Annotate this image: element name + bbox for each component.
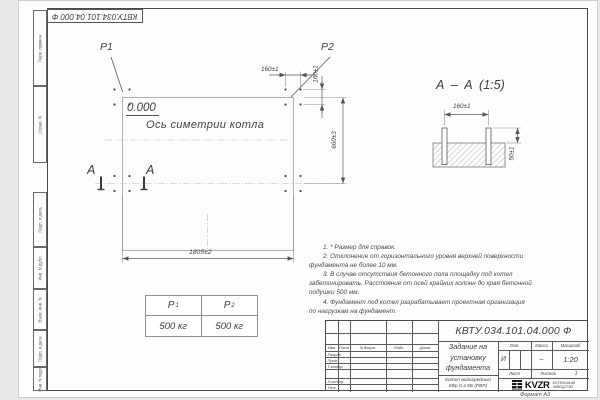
tb-row-tkontr: Т.контр. [326,364,350,369]
tb-listov-label: Листов [533,370,563,378]
load-table-header-p1: Р1 [146,296,202,316]
margin-label: Взам. инв. N [38,297,43,322]
margin-box-podp-data-1: Подп. и дата [33,192,47,247]
tb-scale-label: Масштаб [552,342,589,350]
kvzr-logo-subtitle: КОТЕЛЬНЫЙ ЗАВОД РЭП [553,381,576,389]
dim-bolt-vertical-label: 160±1 [313,58,323,91]
p2-label: Р2 [321,41,334,53]
load-table-value-p2: 500 кг [202,316,258,336]
margin-box-sprav-n: Справ. N [33,86,47,163]
margin-label: Инв. N дубл. [38,255,43,280]
margin-label: Инв. N подл. [38,366,43,391]
tb-col-ndoc: N докум. [350,345,386,351]
tb-listov-value: 1 [566,370,586,378]
margin-box-podp-data-2: Подп. и дата [33,330,47,367]
margin-box-vzam-inv: Взам. инв. N [33,289,47,330]
margin-label: Перв. примен. [38,34,43,63]
margin-label: Справ. N [38,116,43,134]
note-4: 4. Фундамент под котел разрабатывает про… [309,298,573,316]
technical-notes: 1. * Размер для справок. 2. Отклонение о… [309,243,573,316]
note-1: 1. * Размер для справок. [309,243,573,252]
tb-mass-label: Масса [531,342,552,350]
manufacturer-logo: ООО KVZR КОТЕЛЬНЫЙ ЗАВОД РЭП [498,378,589,392]
margin-box-perv-primen: Перв. примен. [33,10,47,86]
tb-mass-value: – [531,350,552,369]
tb-col-list: Лист [338,345,350,351]
tb-row-prov: Пров. [326,358,350,363]
tb-designation: КВТУ.034.101.04.000 Ф [438,321,589,341]
drawing-sheet-viewport: КВТУ.034.101.04.000 Ф Перв. примен. Спра… [0,0,600,400]
dim-height-label: 660±3 [331,120,341,160]
note-2: 2. Отклонение от горизонтального уровня … [309,252,573,270]
tb-col-podp: Подп. [386,345,412,351]
boiler-symmetry-axis-label: Ось симетрии котла [146,119,264,131]
load-table: Р1 Р2 500 кг 500 кг [145,295,258,337]
section-view-title: А – А (1:5) [436,78,505,92]
section-letter-left: А [87,163,95,177]
sec-dim-protrusion-label: 50±1 [509,140,518,166]
tb-scale-value: 1:20 [552,350,589,369]
sec-dim-span-label: 160±1 [453,103,470,110]
margin-label: Подп. и дата [38,207,43,232]
margin-box-inv-dubl: Инв. N дубл. [33,247,47,289]
tb-lit-label: Лит. [498,342,531,350]
format-note: Формат А3 [520,392,550,398]
dim-bolt-horizontal-label: 160±1 [261,66,278,73]
kvzr-logo-icon: ООО [512,380,522,390]
tb-list-label: Лист [498,370,531,378]
section-letter-right: А [146,163,154,177]
margin-box-inv-podl: Инв. N подл. [33,367,47,391]
tb-row-razrab: Разраб. [326,352,350,357]
top-designation-text: КВТУ.034.101.04.000 Ф [52,12,137,21]
elevation-mark: 0.000 [126,102,159,116]
title-block: Изм. Лист N докум. Подп. Дата Разраб. Пр… [325,320,588,391]
p1-label: Р1 [100,41,113,53]
tb-col-data: Дата [412,345,438,351]
margin-label: Подп. и дата [38,336,43,361]
tb-product-name: Котел водогрейный КВр-0,4 КБ (РВР) [438,375,498,392]
tb-doc-title: Задание на установку фундамента [438,341,498,375]
tb-lit-value: И [498,350,509,369]
top-designation-stamp: КВТУ.034.101.04.000 Ф [47,9,143,23]
tb-row-utv: Утв. [326,385,350,390]
note-3: 3. В случае отсутствия бетонного пола пл… [309,270,573,297]
tb-row-nkontr: Н.контр. [326,379,350,384]
load-table-header-p2: Р2 [202,296,258,316]
tb-col-izm: Изм. [326,345,338,351]
kvzr-logo-text: KVZR [525,380,550,391]
dim-length-label: 1805±2 [189,249,212,256]
load-table-value-p1: 500 кг [146,316,202,336]
